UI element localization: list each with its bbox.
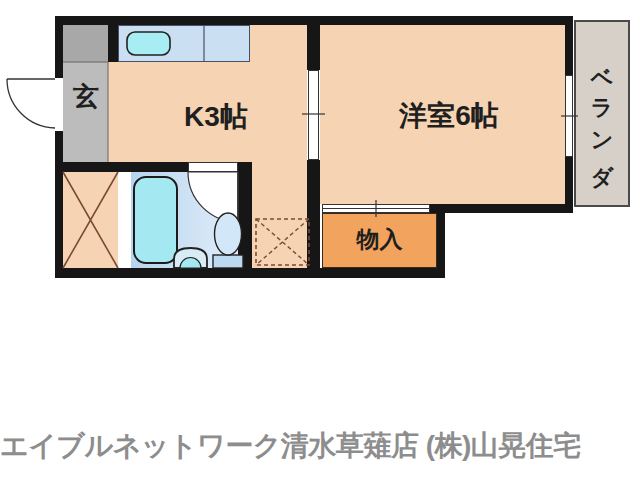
closet-area: [63, 172, 118, 268]
wall: [108, 25, 118, 62]
wall: [55, 131, 63, 278]
veranda-label: ベランダ: [574, 46, 630, 186]
storage-label: 物入: [322, 228, 437, 251]
bathroom-door-opening: [188, 162, 238, 172]
kitchen-counter: [118, 25, 250, 62]
genkan-floor: [63, 62, 108, 162]
corridor-floor: [252, 162, 307, 268]
storage-sliding-door: [322, 204, 430, 213]
wall: [565, 16, 573, 75]
bathroom-floor: [131, 172, 240, 268]
western-room-label: 洋室6帖: [379, 102, 519, 130]
genkan-label: 玄: [60, 83, 112, 109]
wall: [55, 162, 188, 172]
shoe-cabinet: [63, 25, 108, 62]
kitchen-room-sliding-door: [308, 70, 319, 160]
floor-plan: 玄 K3帖 洋室6帖 物入 ベランダ エイブルネットワーク清水草薙店 (株)山晃…: [0, 0, 640, 480]
wall: [55, 16, 63, 78]
wall: [55, 268, 445, 278]
window: [565, 75, 573, 157]
wall: [238, 162, 252, 278]
wall: [55, 16, 573, 25]
entrance-door-arc-icon: [7, 79, 55, 128]
company-name: エイブルネットワーク清水草薙店 (株)山晃住宅: [0, 427, 545, 465]
wall: [437, 204, 445, 278]
wall: [430, 204, 573, 213]
wall: [307, 25, 320, 70]
wall: [307, 160, 320, 278]
kitchen-label: K3帖: [146, 103, 286, 131]
